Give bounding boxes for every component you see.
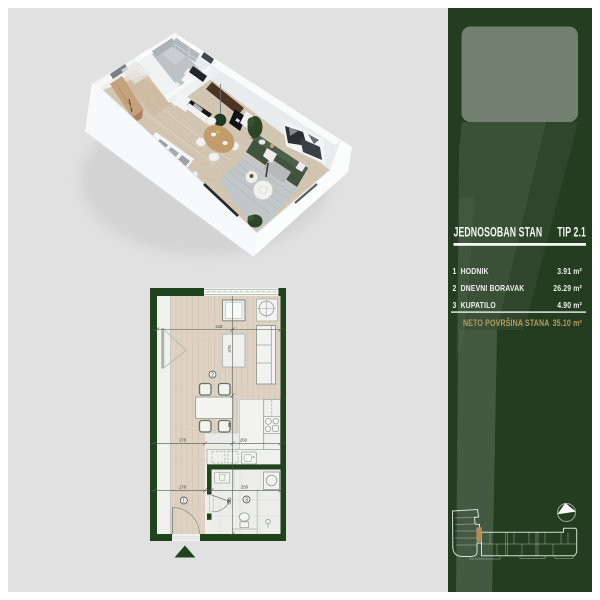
svg-text:4.90 m²: 4.90 m² <box>557 300 582 310</box>
svg-text:3.91 m²: 3.91 m² <box>557 266 582 276</box>
svg-text:418: 418 <box>215 324 223 329</box>
svg-text:JEDNOSOBAN STAN: JEDNOSOBAN STAN <box>454 226 543 240</box>
svg-text:1: 1 <box>182 498 185 504</box>
svg-text:35.10 m²: 35.10 m² <box>553 318 583 328</box>
svg-text:178: 178 <box>179 438 187 443</box>
svg-text:1 HODNIK: 1 HODNIK <box>453 266 489 276</box>
svg-text:240: 240 <box>227 497 232 505</box>
svg-text:2: 2 <box>211 372 214 378</box>
svg-text:26.29 m²: 26.29 m² <box>553 283 582 293</box>
svg-text:178: 178 <box>179 485 187 490</box>
svg-text:260: 260 <box>240 438 248 443</box>
svg-text:NETO POVRŠINA STANA: NETO POVRŠINA STANA <box>463 318 550 328</box>
svg-text:35: 35 <box>227 422 232 427</box>
svg-text:370: 370 <box>227 345 232 353</box>
svg-text:3 KUPATILO: 3 KUPATILO <box>453 300 496 310</box>
svg-text:2 DNEVNI BORAVAK: 2 DNEVNI BORAVAK <box>453 283 525 293</box>
svg-text:TIP 2.1: TIP 2.1 <box>557 226 586 240</box>
svg-text:250: 250 <box>241 485 249 490</box>
svg-text:3: 3 <box>245 497 248 503</box>
